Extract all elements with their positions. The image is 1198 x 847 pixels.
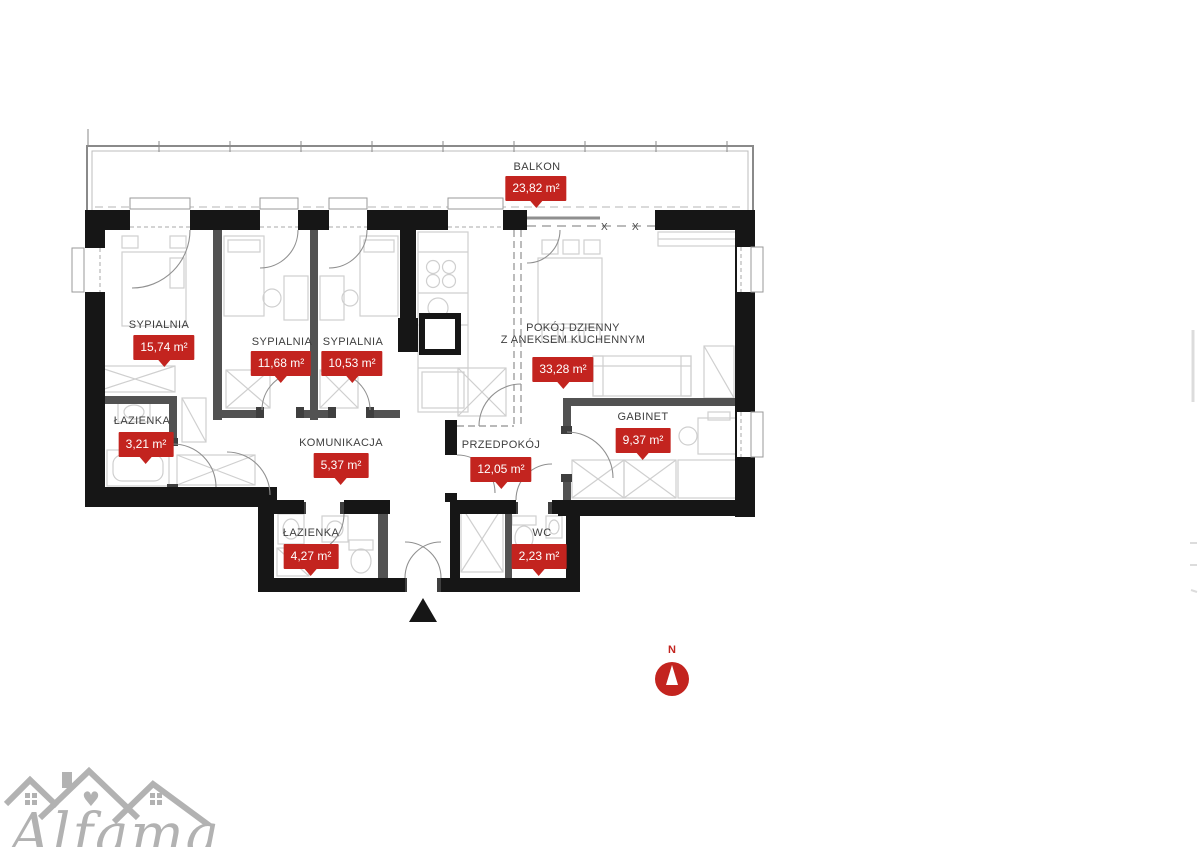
glazing-x-marks: X — [601, 222, 608, 233]
utility-shaft — [398, 316, 458, 352]
room-label-balkon: BALKON — [513, 161, 560, 173]
floorplan-page: X X BALKON SYPIALNIA SYPIALNIA SYPIALNIA… — [0, 0, 1198, 847]
area-badge-lazienka-2: 4,27 m² — [284, 544, 339, 569]
neighbor-plan-edge — [1190, 330, 1197, 592]
floorplan-drawing: X X — [0, 0, 1198, 847]
room-label-komunikacja: KOMUNIKACJA — [299, 437, 383, 449]
room-label-sypialnia-2: SYPIALNIA — [252, 336, 312, 348]
area-badge-gabinet: 9,37 m² — [616, 428, 671, 453]
logo-wordmark: Alfama — [10, 802, 221, 847]
entrance-marker-icon — [409, 598, 437, 622]
area-badge-sypialnia-1: 15,74 m² — [133, 335, 194, 360]
compass-icon — [654, 661, 690, 697]
area-badge-przedpokoj: 12,05 m² — [470, 457, 531, 482]
room-label-sypialnia-1: SYPIALNIA — [129, 319, 189, 331]
area-badge-sypialnia-2: 11,68 m² — [251, 351, 311, 376]
brand-logo: ♥ Alfama — [2, 760, 232, 847]
glazing-x-marks-2: X — [632, 222, 639, 233]
area-badge-wc: 2,23 m² — [512, 544, 567, 569]
area-badge-lazienka-1: 3,21 m² — [119, 432, 174, 457]
area-badge-balkon: 23,82 m² — [505, 176, 566, 201]
room-label-wc: WC — [532, 527, 551, 539]
doors-layer — [132, 230, 613, 578]
room-label-lazienka-1: ŁAZIENKA — [114, 415, 170, 427]
room-label-lazienka-2: ŁAZIENKA — [283, 527, 339, 539]
room-label-sypialnia-3: SYPIALNIA — [323, 336, 383, 348]
compass-north-label: N — [668, 644, 676, 656]
room-label-gabinet: GABINET — [617, 411, 668, 423]
room-label-przedpokoj: PRZEDPOKÓJ — [462, 439, 541, 451]
area-badge-sypialnia-3: 10,53 m² — [321, 351, 382, 376]
area-badge-komunikacja: 5,37 m² — [314, 453, 369, 478]
area-badge-pokoj-dzienny: 33,28 m² — [532, 357, 593, 382]
room-label-pokoj-dzienny: POKÓJ DZIENNY Z ANEKSEM KUCHENNYM — [501, 322, 646, 346]
